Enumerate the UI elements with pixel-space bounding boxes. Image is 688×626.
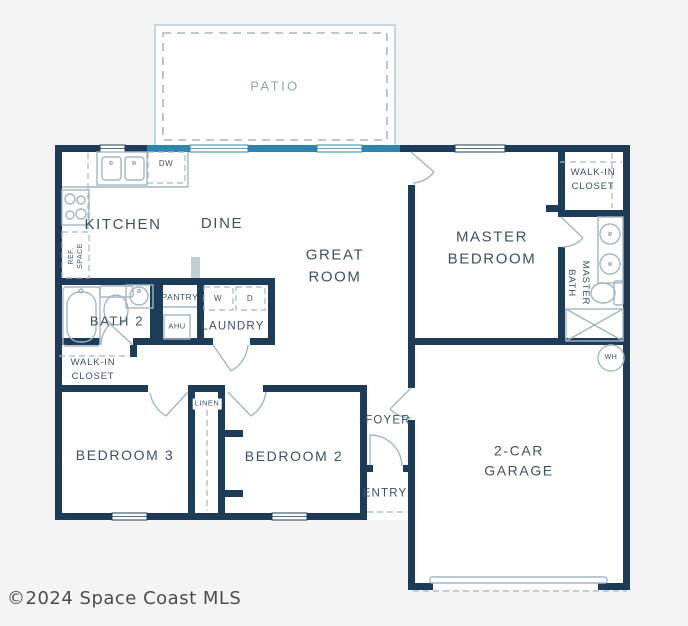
label-master-bedroom: MASTER BEDROOM: [448, 226, 537, 270]
label-bedroom2: BEDROOM 2: [245, 446, 343, 466]
label-washer: W: [214, 293, 222, 305]
label-walkin-closet-left: WALK-IN CLOSET: [71, 356, 116, 384]
label-kitchen: KITCHEN: [84, 214, 161, 236]
label-linen: LINEN: [193, 399, 222, 410]
label-ahu: AHU: [168, 322, 185, 333]
label-dine: DINE: [201, 213, 243, 235]
label-bedroom3: BEDROOM 3: [76, 445, 174, 465]
label-laundry: LAUNDRY: [201, 319, 264, 336]
label-dryer: D: [247, 293, 253, 305]
label-ref-space: REF. SPACE: [67, 243, 85, 269]
label-entry: ENTRY: [363, 486, 408, 503]
label-garage: 2-CAR GARAGE: [484, 441, 554, 482]
floorplan-canvas: PATIO KITCHEN DINE GREAT ROOM MASTER BED…: [0, 0, 688, 626]
label-master-bath: MASTER BATH: [564, 261, 592, 305]
label-water-heater: WH: [605, 353, 618, 363]
label-walkin-closet-right: WALK-IN CLOSET: [571, 166, 616, 194]
copyright-watermark: ©2024 Space Coast MLS: [7, 588, 241, 609]
label-great-room: GREAT ROOM: [306, 244, 365, 288]
label-bath2: BATH 2: [90, 313, 144, 332]
label-foyer: FOYER: [365, 413, 411, 430]
label-pantry: PANTRY: [162, 291, 199, 303]
garage-door-icon: [430, 577, 607, 583]
label-dishwasher: DW: [159, 158, 173, 170]
label-patio: PATIO: [250, 78, 300, 97]
